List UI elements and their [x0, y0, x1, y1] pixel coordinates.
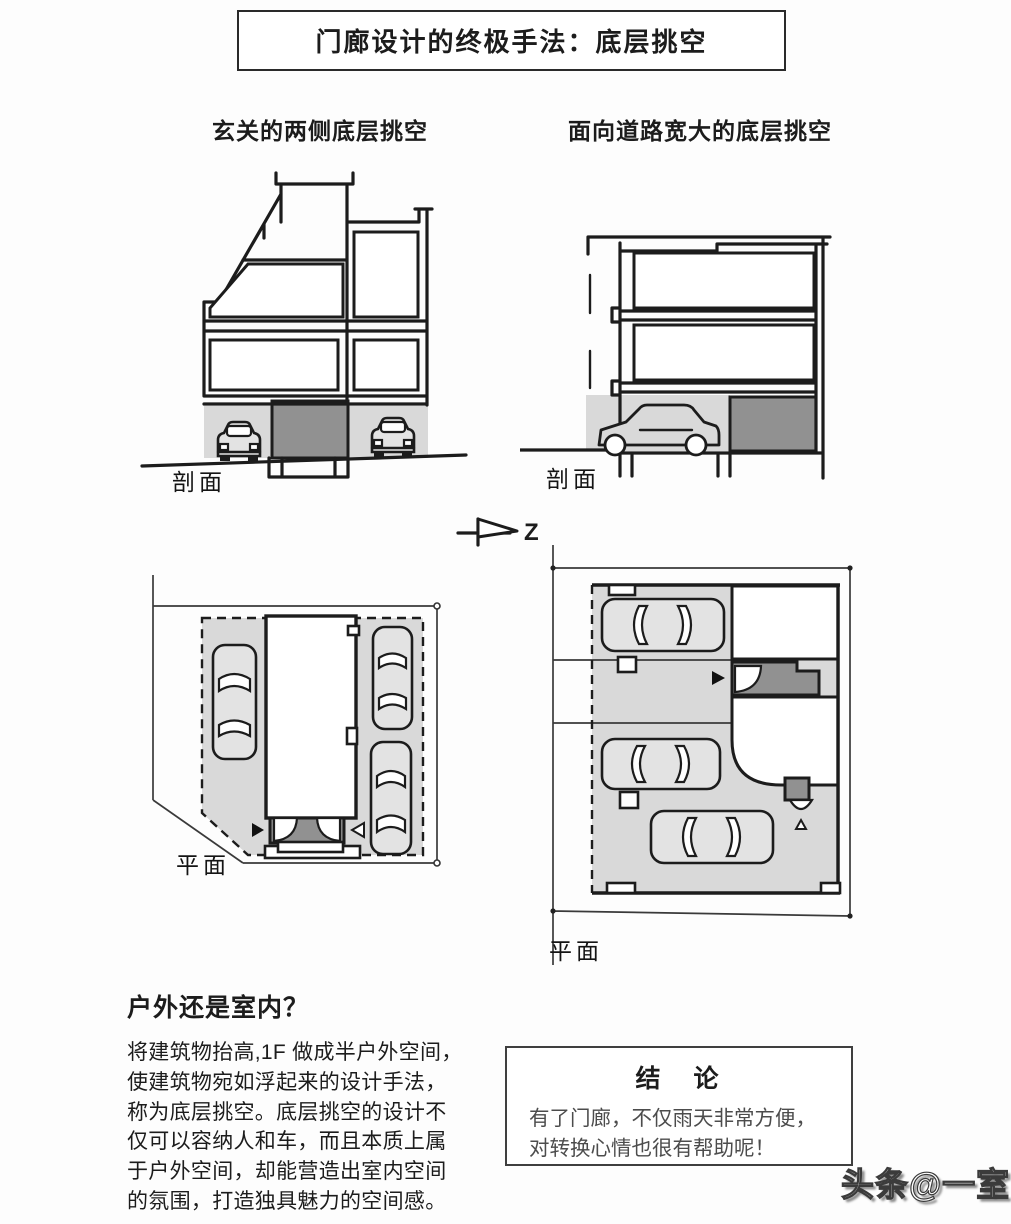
car-top-icon — [602, 599, 724, 651]
room — [634, 325, 814, 380]
indoor-area — [732, 586, 838, 659]
watermark: 头条@一室 — [841, 1158, 1010, 1206]
left-column-heading: 玄关的两侧底层挑空 — [160, 112, 480, 146]
left-section-drawing — [130, 160, 475, 500]
conclusion-box: 结 论 有了门廊，不仅雨天非常方便， 对转换心情也很有帮助呢！ — [505, 1046, 853, 1166]
left-section-label: 剖面 — [172, 463, 226, 497]
conclusion-line: 有了门廊，不仅雨天非常方便， — [507, 1104, 851, 1134]
car-top-icon — [651, 811, 773, 863]
conclusion-title: 结 论 — [507, 1059, 851, 1095]
car-top-icon — [602, 739, 720, 789]
pillar — [618, 657, 636, 672]
entrance-step — [278, 842, 343, 852]
car-top-icon — [373, 627, 412, 729]
body-text-line: 于户外空间，却能营造出室内空间 — [127, 1157, 487, 1187]
body-text-line: 的氛围，打造独具魅力的空间感。 — [127, 1187, 487, 1217]
right-plan-drawing — [545, 545, 935, 970]
right-plan-label: 平面 — [549, 932, 603, 966]
page-title-box: 门廊设计的终极手法：底层挑空 — [237, 10, 786, 71]
car-top-icon — [371, 742, 411, 854]
left-plan-label: 平面 — [176, 846, 230, 880]
conclusion-line: 对转换心情也很有帮助呢！ — [507, 1134, 851, 1164]
rooms — [210, 232, 418, 390]
body-text-line: 称为底层挑空。底层挑空的设计不 — [127, 1098, 487, 1128]
room — [634, 253, 814, 308]
right-section-drawing — [520, 183, 892, 483]
question-heading: 户外还是室内？ — [127, 988, 487, 1024]
page-title: 门廊设计的终极手法：底层挑空 — [315, 22, 707, 59]
body-text-line: 仅可以容纳人和车，而且本质上属 — [127, 1127, 487, 1157]
body-text-line: 将建筑物抬高,1F 做成半户外空间， — [127, 1038, 487, 1068]
right-section-label: 剖面 — [546, 460, 600, 494]
question-section: 户外还是室内？ 将建筑物抬高,1F 做成半户外空间， 使建筑物宛如浮起来的设计手… — [127, 988, 487, 1217]
right-column-heading: 面向道路宽大的底层挑空 — [555, 112, 845, 146]
left-plan-drawing — [146, 572, 481, 882]
pillar — [620, 792, 638, 808]
north-label: Z — [524, 519, 539, 546]
back-porch — [785, 778, 809, 800]
body-text-line: 使建筑物宛如浮起来的设计手法， — [127, 1068, 487, 1098]
book-page: 门廊设计的终极手法：底层挑空 玄关的两侧底层挑空 面向道路宽大的底层挑空 — [0, 0, 1011, 1224]
enclosed-core — [730, 397, 816, 451]
building-footprint — [266, 616, 356, 818]
car-top-icon — [213, 645, 256, 759]
indoor-area — [732, 697, 838, 785]
entrance-core — [272, 401, 348, 458]
north-arrow-icon: Z — [450, 505, 560, 550]
